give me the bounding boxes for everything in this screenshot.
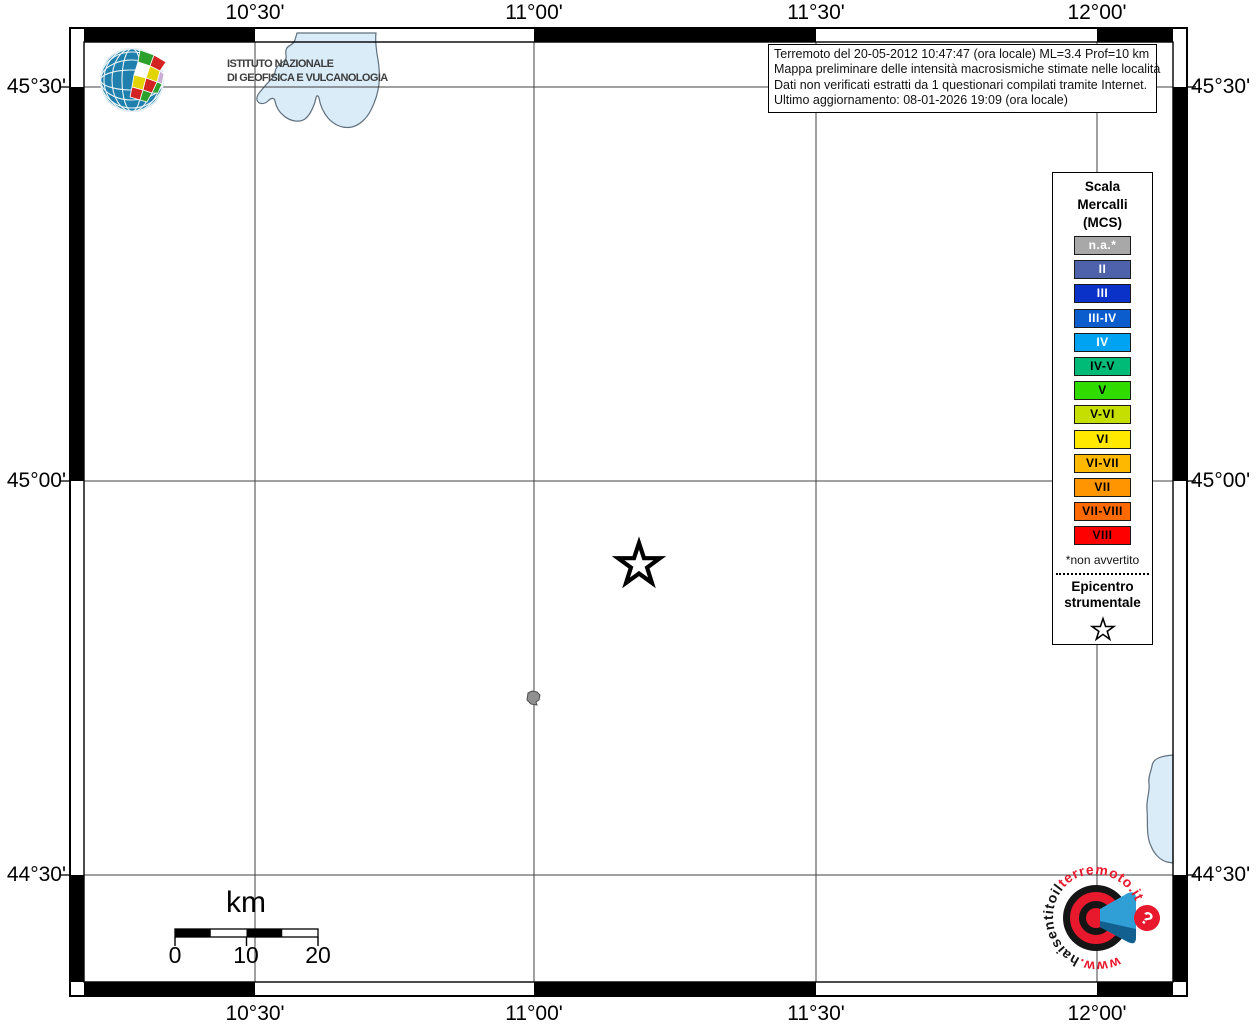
legend-swatch-list: n.a.*IIIIIIII-IVIVIV-VVV-VIVIVI-VIIVIIVI… — [1053, 236, 1152, 545]
legend-swatch-v-vi: V-VI — [1074, 405, 1131, 424]
legend-swatch-iii-iv: III-IV — [1074, 309, 1131, 328]
axis-label-top-1200: 12°00' — [1052, 1, 1142, 25]
legend-swatch-n-a-: n.a.* — [1074, 236, 1131, 255]
axis-label-top-1130: 11°30' — [771, 1, 861, 25]
ingv-wordmark-line1: ISTITUTO NAZIONALE — [227, 57, 388, 71]
earthquake-info-box: Terremoto del 20-05-2012 10:47:47 (ora l… — [768, 44, 1157, 113]
legend-title: Scala Mercalli (MCS) — [1053, 173, 1152, 232]
axis-label-top-1030: 10°30' — [210, 1, 300, 25]
scale-bar-label-20: 20 — [296, 942, 340, 969]
legend-swatch-vii-viii: VII-VIII — [1074, 502, 1131, 521]
info-line-data: Dati non verificati estratti da 1 questi… — [774, 78, 1152, 93]
axis-label-bottom-1100: 11°00' — [489, 1002, 579, 1026]
legend-swatch-viii: VIII — [1074, 526, 1131, 545]
axis-label-bottom-1200: 12°00' — [1052, 1002, 1142, 1026]
map-outer-frame — [70, 28, 1187, 996]
legend-star-icon — [1089, 614, 1117, 644]
lake-polygon-right — [1147, 755, 1173, 863]
legend-swatch-iii: III — [1074, 284, 1131, 303]
legend-epicenter-label: Epicentro strumentale — [1053, 579, 1152, 611]
axis-label-bottom-1130: 11°30' — [771, 1002, 861, 1026]
axis-label-right-4500: 45°00' — [1191, 469, 1250, 493]
axis-label-left-4500: 45°00' — [0, 469, 66, 493]
legend-footnote: *non avvertito — [1053, 553, 1152, 567]
axis-label-left-4530: 45°30' — [0, 75, 66, 99]
legend-swatch-vi: VI — [1074, 430, 1131, 449]
legend-swatch-v: V — [1074, 381, 1131, 400]
ingv-wordmark: ISTITUTO NAZIONALE DI GEOFISICA E VULCAN… — [227, 57, 388, 85]
info-line-event: Terremoto del 20-05-2012 10:47:47 (ora l… — [774, 47, 1152, 62]
legend-swatch-ii: II — [1074, 260, 1131, 279]
axis-label-bottom-1030: 10°30' — [210, 1002, 300, 1026]
axis-label-right-4430: 44°30' — [1191, 863, 1250, 887]
axis-label-right-4530: 45°30' — [1191, 75, 1250, 99]
legend-swatch-vi-vii: VI-VII — [1074, 454, 1131, 473]
ingv-wordmark-line2: DI GEOFISICA E VULCANOLOGIA — [227, 71, 388, 85]
legend-swatch-iv: IV — [1074, 333, 1131, 352]
info-line-map: Mappa preliminare delle intensità macros… — [774, 62, 1152, 77]
legend-swatch-iv-v: IV-V — [1074, 357, 1131, 376]
scale-bar-unit: km — [216, 886, 276, 920]
legend-swatch-vii: VII — [1074, 478, 1131, 497]
info-line-updated: Ultimo aggiornamento: 08-01-2026 19:09 (… — [774, 93, 1152, 108]
legend-box: Scala Mercalli (MCS) n.a.*IIIIIIII-IVIVI… — [1052, 172, 1153, 645]
axis-label-top-1100: 11°00' — [489, 1, 579, 25]
legend-separator — [1056, 573, 1149, 575]
scale-bar-label-0: 0 — [153, 942, 197, 969]
scale-bar-label-10: 10 — [224, 942, 268, 969]
axis-label-left-4430: 44°30' — [0, 863, 66, 887]
